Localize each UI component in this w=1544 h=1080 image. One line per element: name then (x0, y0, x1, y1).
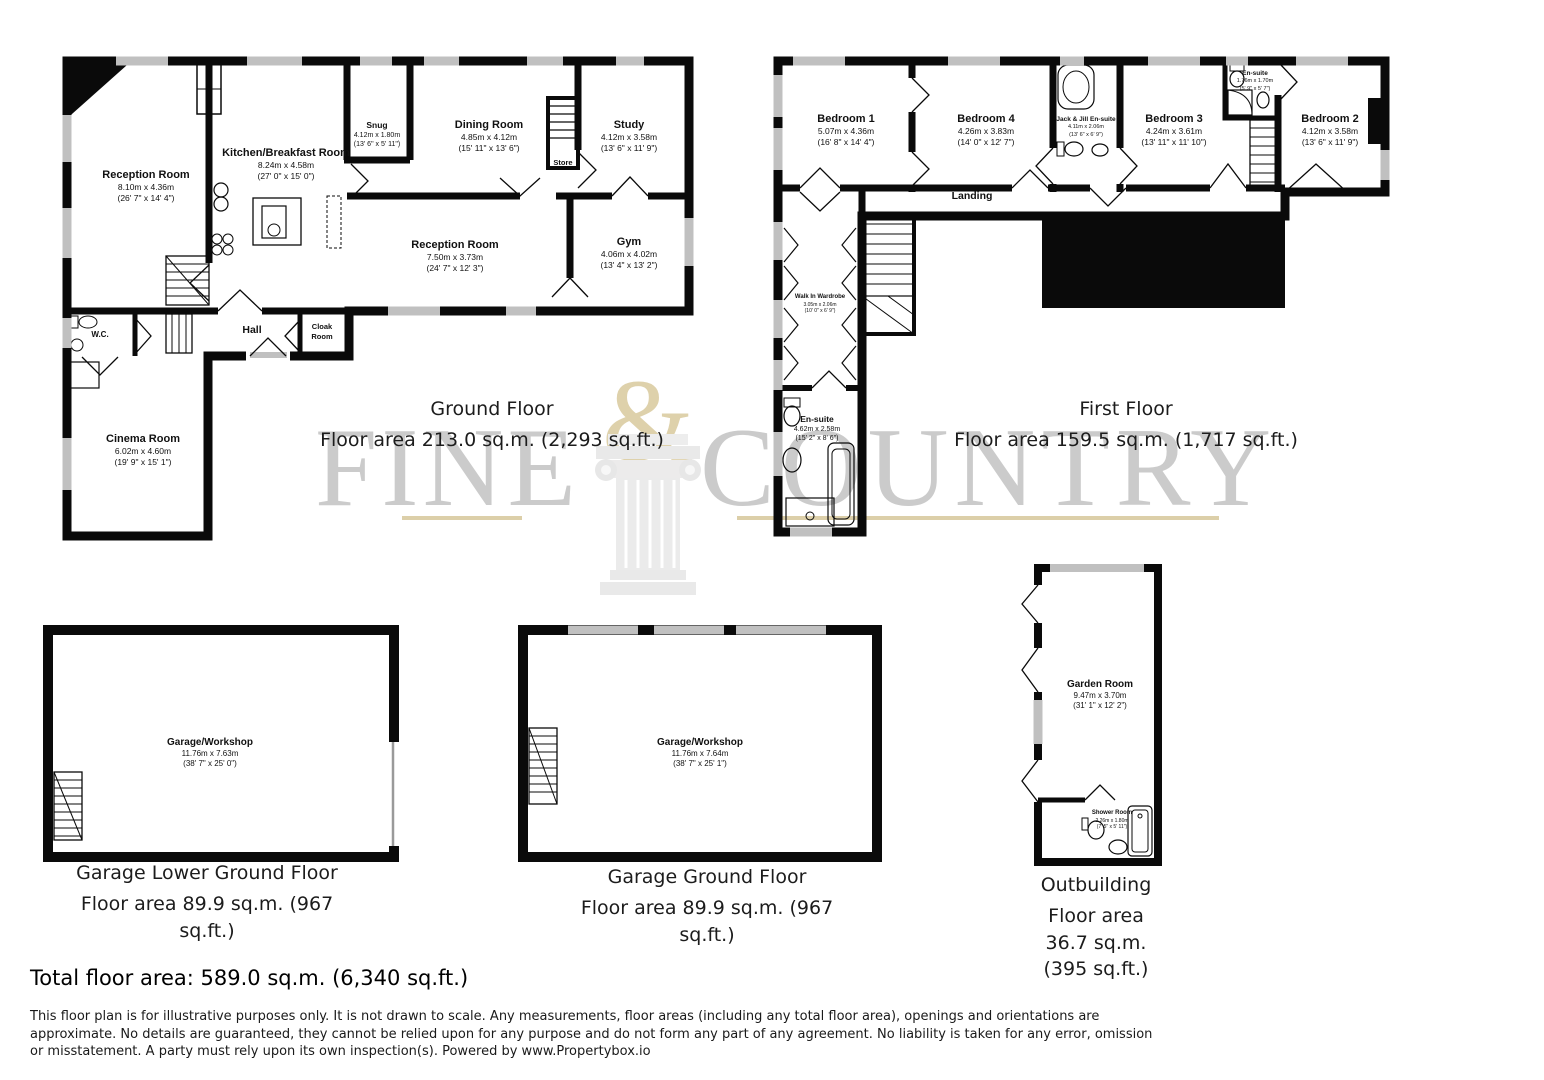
room-label-ensuite-main: En-suite 4.62m x 2.58m (15' 2" x 8' 6") (794, 414, 840, 443)
floor-title-text: Garage Lower Ground Floor (61, 862, 353, 884)
room-metric: 7.50m x 3.73m (411, 252, 498, 263)
room-name: Bedroom 4 (957, 112, 1014, 126)
room-label-hall: Hall (242, 324, 261, 338)
watermark-rule-right (737, 516, 1219, 520)
room-label-landing: Landing (952, 190, 993, 204)
room-imperial: (13' 4" x 13' 2") (600, 260, 657, 271)
room-name: En-suite (1237, 70, 1273, 78)
floor-title-text: Ground Floor (320, 398, 664, 420)
room-label-garden-room: Garden Room 9.47m x 3.70m (31' 1" x 12' … (1067, 678, 1133, 712)
room-name: Garden Room (1067, 678, 1133, 691)
room-imperial: (5' 9" x 5' 7") (1237, 86, 1273, 93)
room-name: Garage/Workshop (657, 736, 743, 749)
room-imperial: (24' 7" x 12' 3") (411, 263, 498, 274)
room-metric: 4.62m x 2.58m (794, 425, 840, 434)
room-metric: 1.76m x 1.70m (1237, 78, 1273, 85)
room-metric: 4.12m x 1.80m (354, 131, 400, 140)
room-label-jack-and-jill-ensuite: Jack & Jill En-suite 4.11m x 2.06m (13' … (1056, 116, 1115, 139)
floor-title-text: Garage Ground Floor (561, 866, 853, 888)
room-metric: 4.12m x 3.58m (1301, 126, 1358, 137)
room-label-gym: Gym 4.06m x 4.02m (13' 4" x 13' 2") (600, 235, 657, 271)
room-label-store: Store (553, 158, 572, 168)
garage-lower-title: Garage Lower Ground Floor Floor area 89.… (61, 862, 353, 944)
room-imperial: (16' 8" x 14' 4") (817, 137, 874, 148)
room-name: Snug (354, 120, 400, 131)
room-label-bedroom-1: Bedroom 1 5.07m x 4.36m (16' 8" x 14' 4"… (817, 112, 874, 148)
room-metric: 5.07m x 4.36m (817, 126, 874, 137)
room-imperial: (19' 9" x 15' 1") (106, 457, 180, 468)
room-label-dining-room: Dining Room 4.85m x 4.12m (15' 11" x 13'… (455, 118, 523, 154)
room-imperial: (38' 7" x 25' 1") (657, 759, 743, 769)
disclaimer-text: This floor plan is for illustrative purp… (30, 1008, 1158, 1061)
room-metric: 4.11m x 2.06m (1056, 124, 1115, 131)
room-label-cinema-room: Cinema Room 6.02m x 4.60m (19' 9" x 15' … (106, 432, 180, 468)
room-name: Bedroom 2 (1301, 112, 1358, 126)
room-label-walk-in-wardrobe: Walk In Wardrobe 3.05m x 2.06m (10' 0" x… (795, 294, 845, 315)
room-metric: 11.76m x 7.64m (657, 749, 743, 759)
room-metric: 8.10m x 4.36m (102, 182, 189, 193)
room-name: Shower Room (1092, 810, 1132, 818)
room-label-cloak-room: Cloak Room (302, 322, 342, 342)
room-label-reception-room-1: Reception Room 8.10m x 4.36m (26' 7" x 1… (102, 168, 189, 204)
room-metric: 11.76m x 7.63m (167, 749, 253, 759)
room-name: Bedroom 1 (817, 112, 874, 126)
room-imperial: (15' 2" x 8' 6") (794, 434, 840, 443)
room-metric: 4.06m x 4.02m (600, 249, 657, 260)
floor-area-text: Floor area 89.9 sq.m. (967 sq.ft.) (61, 891, 353, 944)
room-name: Kitchen/Breakfast Room (222, 146, 350, 160)
floor-area-text: Floor area 36.7 sq.m. (395 sq.ft.) (1039, 903, 1153, 983)
room-name: Cinema Room (106, 432, 180, 446)
room-imperial: (13' 6" x 11' 9") (601, 143, 657, 154)
room-label-wc: W.C. (91, 330, 108, 340)
room-metric: 4.85m x 4.12m (455, 132, 523, 143)
room-metric: 9.47m x 3.70m (1067, 691, 1133, 701)
room-imperial: (31' 1" x 12' 2") (1067, 701, 1133, 711)
room-metric: 4.26m x 3.83m (957, 126, 1014, 137)
room-name: Gym (600, 235, 657, 249)
room-label-study: Study 4.12m x 3.58m (13' 6" x 11' 9") (601, 118, 657, 154)
floor-title-text: First Floor (954, 398, 1298, 420)
room-imperial: (13' 11" x 11' 10") (1141, 137, 1206, 148)
room-imperial: (14' 0" x 12' 7") (957, 137, 1014, 148)
room-imperial: (13' 6" x 6' 9") (1056, 132, 1115, 139)
floor-title-text: Outbuilding (1039, 874, 1153, 896)
room-label-bedroom-3: Bedroom 3 4.24m x 3.61m (13' 11" x 11' 1… (1141, 112, 1206, 148)
room-imperial: (26' 7" x 14' 4") (102, 193, 189, 204)
room-label-kitchen: Kitchen/Breakfast Room 8.24m x 4.58m (27… (222, 146, 350, 182)
room-label-garage-workshop-lower: Garage/Workshop 11.76m x 7.63m (38' 7" x… (167, 736, 253, 770)
room-metric: 4.24m x 3.61m (1141, 126, 1206, 137)
room-imperial: (13' 6" x 5' 11") (354, 140, 400, 149)
floor-area-text: Floor area 213.0 sq.m. (2,293 sq.ft.) (320, 427, 664, 454)
room-imperial: (13' 6" x 11' 9") (1301, 137, 1358, 148)
total-floor-area: Total floor area: 589.0 sq.m. (6,340 sq.… (30, 966, 468, 990)
floor-area-text: Floor area 159.5 sq.m. (1,717 sq.ft.) (954, 427, 1298, 454)
room-name: Study (601, 118, 657, 132)
room-label-ensuite-top: En-suite 1.76m x 1.70m (5' 9" x 5' 7") (1237, 70, 1273, 93)
room-imperial: (38' 7" x 25' 0") (167, 759, 253, 769)
room-name: Reception Room (411, 238, 498, 252)
first-floor-title: First Floor Floor area 159.5 sq.m. (1,71… (954, 398, 1298, 454)
room-metric: 4.12m x 3.58m (601, 132, 657, 143)
watermark-column-icon (592, 430, 704, 600)
room-label-garage-workshop-ground: Garage/Workshop 11.76m x 7.64m (38' 7" x… (657, 736, 743, 770)
room-imperial: (7' 5" x 5' 11") (1092, 824, 1132, 831)
floorplan-page: FINE & COUNTRY (0, 0, 1544, 1080)
room-metric: 6.02m x 4.60m (106, 446, 180, 457)
room-label-snug: Snug 4.12m x 1.80m (13' 6" x 5' 11") (354, 120, 400, 149)
room-label-reception-room-2: Reception Room 7.50m x 3.73m (24' 7" x 1… (411, 238, 498, 274)
outbuilding-title: Outbuilding Floor area 36.7 sq.m. (395 s… (1039, 874, 1153, 983)
ground-floor-title: Ground Floor Floor area 213.0 sq.m. (2,2… (320, 398, 664, 454)
room-label-shower-room: Shower Room 2.26m x 1.80m (7' 5" x 5' 11… (1092, 810, 1132, 831)
room-label-bedroom-4: Bedroom 4 4.26m x 3.83m (14' 0" x 12' 7"… (957, 112, 1014, 148)
room-label-bedroom-2: Bedroom 2 4.12m x 3.58m (13' 6" x 11' 9"… (1301, 112, 1358, 148)
garage-ground-title: Garage Ground Floor Floor area 89.9 sq.m… (561, 866, 853, 948)
room-name: Garage/Workshop (167, 736, 253, 749)
room-imperial: (27' 0" x 15' 0") (222, 171, 350, 182)
room-name: Jack & Jill En-suite (1056, 116, 1115, 124)
floor-area-text: Floor area 89.9 sq.m. (967 sq.ft.) (561, 895, 853, 948)
room-metric: 8.24m x 4.58m (222, 160, 350, 171)
room-imperial: (10' 0" x 6' 9") (795, 308, 845, 315)
room-name: En-suite (794, 414, 840, 425)
room-name: Walk In Wardrobe (795, 294, 845, 302)
room-name: Bedroom 3 (1141, 112, 1206, 126)
room-name: Reception Room (102, 168, 189, 182)
room-imperial: (15' 11" x 13' 6") (455, 143, 523, 154)
watermark-rule-left (402, 516, 522, 520)
room-name: Dining Room (455, 118, 523, 132)
